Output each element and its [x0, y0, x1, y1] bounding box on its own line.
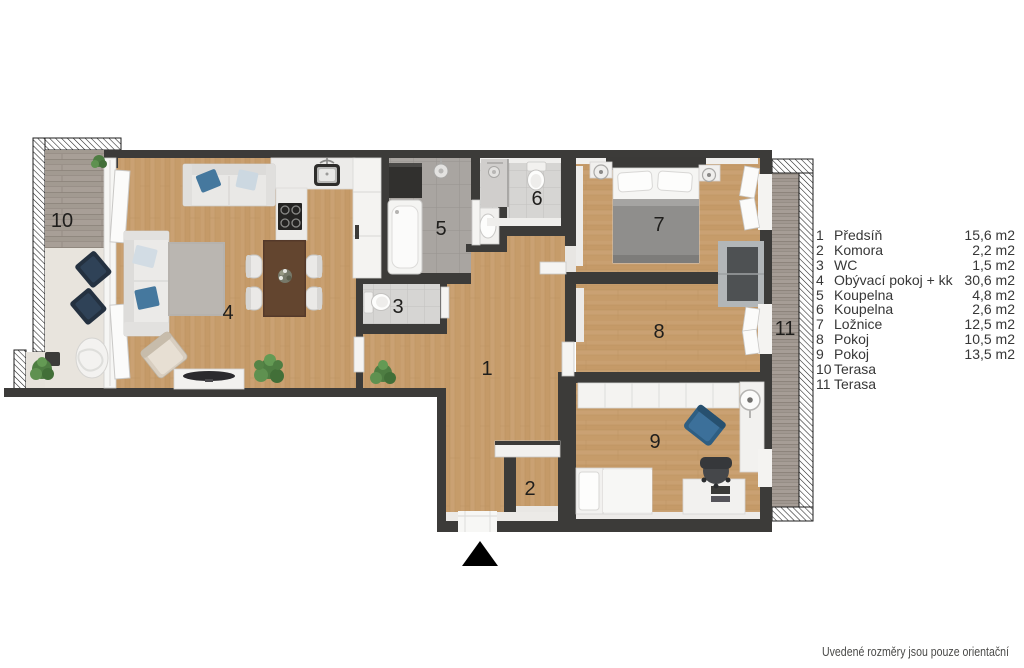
svg-text:8: 8 — [653, 321, 664, 343]
svg-text:8: 8 — [816, 331, 824, 347]
svg-text:9: 9 — [816, 346, 824, 362]
svg-text:10: 10 — [816, 361, 832, 377]
svg-text:Pokoj: Pokoj — [834, 331, 869, 347]
svg-text:7: 7 — [816, 316, 824, 332]
svg-text:2,6 m2: 2,6 m2 — [972, 301, 1015, 317]
svg-text:15,6 m2: 15,6 m2 — [964, 227, 1015, 243]
svg-text:2,2 m2: 2,2 m2 — [972, 242, 1015, 258]
svg-text:6: 6 — [816, 301, 824, 317]
svg-text:11: 11 — [816, 376, 831, 392]
svg-text:1,5 m2: 1,5 m2 — [972, 257, 1015, 273]
svg-text:4: 4 — [816, 272, 824, 288]
svg-text:3: 3 — [392, 296, 403, 318]
svg-text:4: 4 — [222, 302, 233, 324]
svg-text:11: 11 — [775, 318, 796, 340]
svg-text:10,5 m2: 10,5 m2 — [964, 331, 1015, 347]
svg-text:2: 2 — [524, 478, 535, 500]
svg-text:Uvedené rozměry jsou pouze ori: Uvedené rozměry jsou pouze orientační — [822, 645, 1009, 659]
svg-text:13,5 m2: 13,5 m2 — [964, 346, 1015, 362]
svg-text:Ložnice: Ložnice — [834, 316, 882, 332]
svg-text:WC: WC — [834, 257, 857, 273]
svg-text:9: 9 — [649, 431, 660, 453]
svg-text:2: 2 — [816, 242, 824, 258]
svg-text:12,5 m2: 12,5 m2 — [964, 316, 1015, 332]
svg-text:Koupelna: Koupelna — [834, 301, 893, 317]
svg-text:Předsíň: Předsíň — [834, 227, 882, 243]
svg-text:5: 5 — [435, 218, 446, 240]
svg-text:1: 1 — [816, 227, 824, 243]
svg-text:7: 7 — [653, 214, 664, 236]
svg-text:3: 3 — [816, 257, 824, 273]
svg-text:Komora: Komora — [834, 242, 883, 258]
svg-text:Pokoj: Pokoj — [834, 346, 869, 362]
svg-text:Terasa: Terasa — [834, 376, 876, 392]
svg-text:1: 1 — [481, 358, 492, 380]
svg-text:30,6 m2: 30,6 m2 — [964, 272, 1015, 288]
svg-text:6: 6 — [531, 188, 542, 210]
svg-text:Terasa: Terasa — [834, 361, 876, 377]
svg-text:10: 10 — [51, 210, 73, 232]
svg-text:Obývací pokoj + kk: Obývací pokoj + kk — [834, 272, 954, 288]
